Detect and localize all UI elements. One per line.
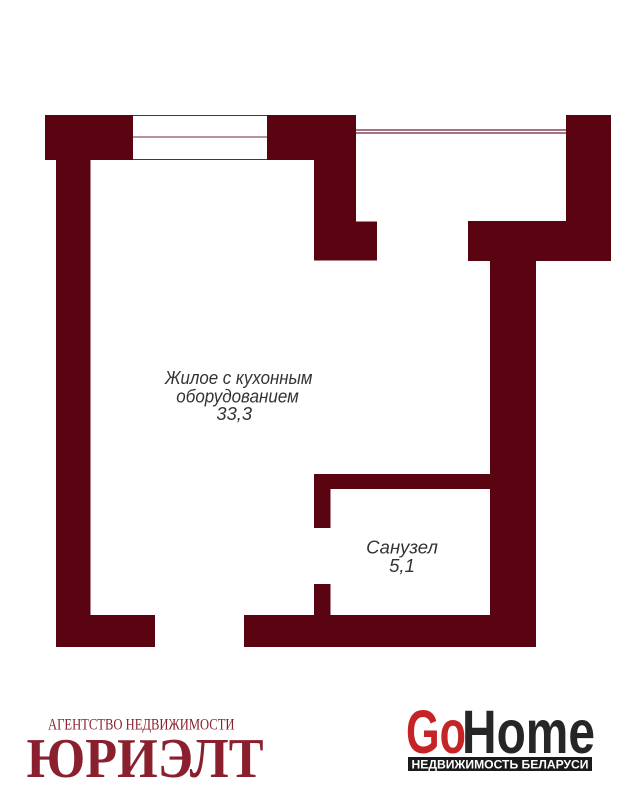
svg-text:5,1: 5,1 [389, 555, 415, 576]
svg-text:ЮРИЭЛТ: ЮРИЭЛТ [27, 728, 264, 790]
svg-text:Home: Home [462, 698, 595, 766]
svg-text:НЕДВИЖИМОСТЬ БЕЛАРУСИ: НЕДВИЖИМОСТЬ БЕЛАРУСИ [412, 758, 589, 772]
svg-text:Go: Go [406, 698, 466, 766]
svg-text:33,3: 33,3 [216, 403, 252, 424]
